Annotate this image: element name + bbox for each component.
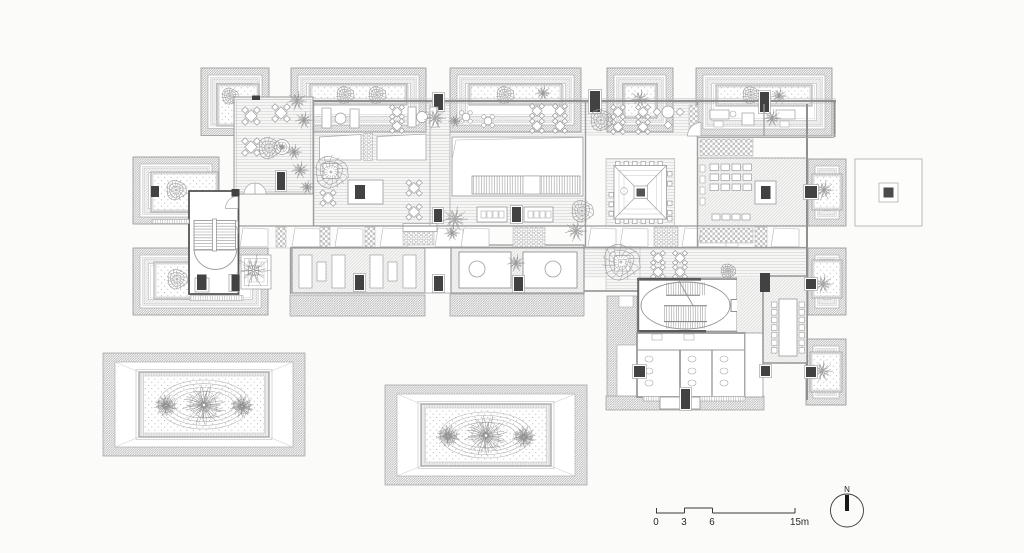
- svg-text:0: 0: [653, 517, 659, 528]
- svg-text:15m: 15m: [790, 517, 809, 528]
- svg-text:6: 6: [709, 517, 715, 528]
- svg-text:3: 3: [681, 517, 687, 528]
- svg-text:N: N: [844, 485, 850, 494]
